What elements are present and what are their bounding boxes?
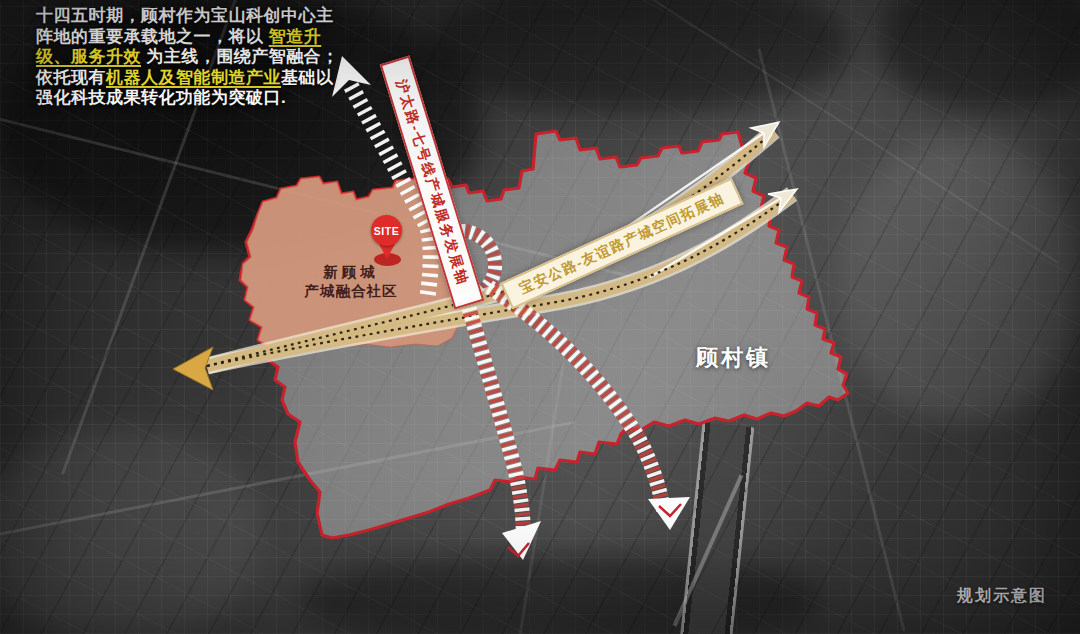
intro-text: 十四五时期，顾村作为宝山科创中心主阵地的重要承载地之一，将以 智造升级、服务升效… <box>36 6 382 109</box>
axis-arrow-west <box>173 347 213 390</box>
map-caption: 规划示意图 <box>957 586 1047 607</box>
intro-line: 强化科技成果转化功能为突破口. <box>36 88 382 109</box>
site-pin-head: SITE <box>371 215 402 246</box>
intro-line: 级、服务升效 为主线，围绕产智融合； <box>36 47 382 68</box>
intro-line: 阵地的重要承载地之一，将以 智造升 <box>36 27 382 48</box>
site-pin-label: SITE <box>374 225 399 237</box>
xingucheng-label-line1: 新顾城 <box>280 263 422 282</box>
site-pin: SITE <box>371 215 403 265</box>
gucun-town-label: 顾村镇 <box>696 343 771 373</box>
intro-line: 十四五时期，顾村作为宝山科创中心主 <box>36 6 382 27</box>
planning-map: 十四五时期，顾村作为宝山科创中心主阵地的重要承载地之一，将以 智造升级、服务升效… <box>0 0 1080 634</box>
xingucheng-label: 新顾城 产城融合社区 <box>280 263 422 301</box>
intro-line: 依托现有机器人及智能制造产业基础以 <box>36 68 382 89</box>
xingucheng-label-line2: 产城融合社区 <box>280 282 422 301</box>
